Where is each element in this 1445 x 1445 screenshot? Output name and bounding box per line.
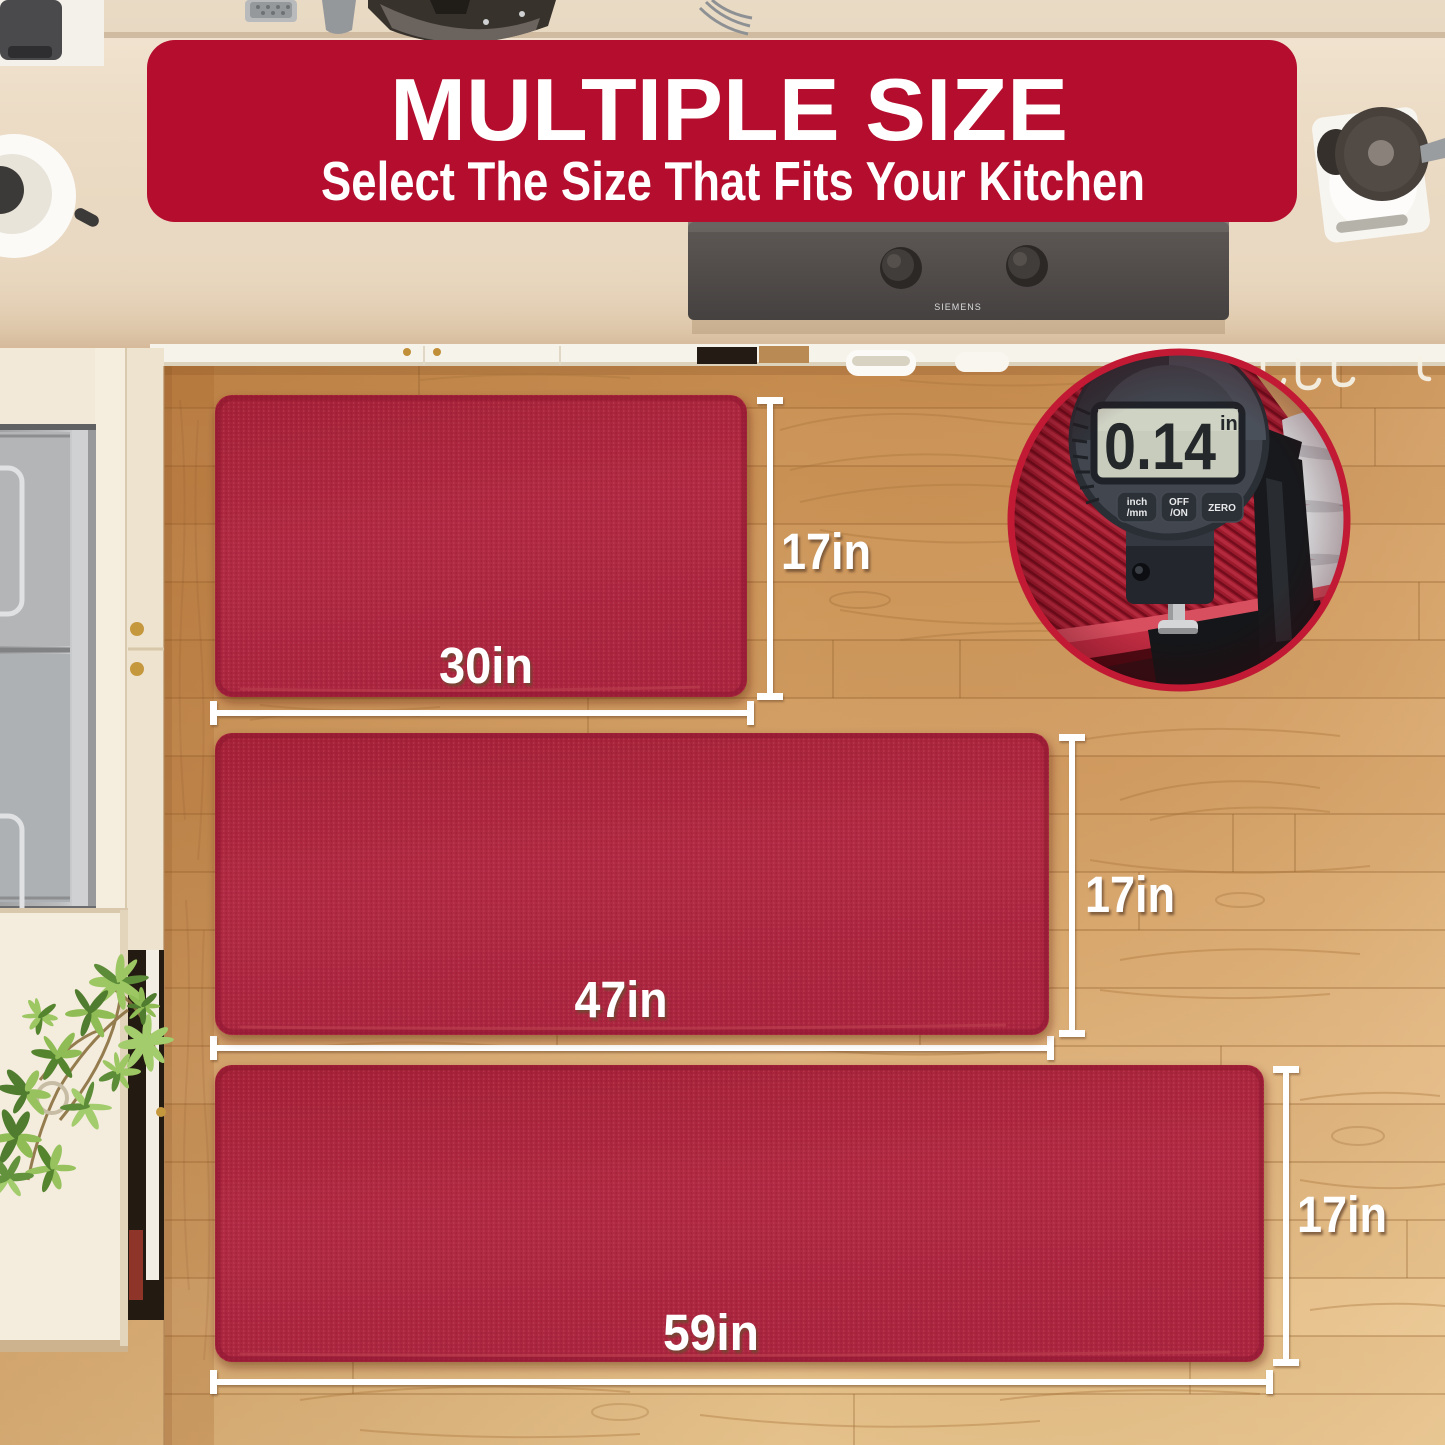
svg-text:17in: 17in xyxy=(1085,866,1175,923)
svg-text:Select The Size That Fits Your: Select The Size That Fits Your Kitchen xyxy=(321,150,1145,212)
svg-text:47in: 47in xyxy=(575,971,668,1028)
svg-text:17in: 17in xyxy=(1297,1186,1387,1243)
svg-text:59in: 59in xyxy=(663,1304,759,1361)
svg-text:17in: 17in xyxy=(781,523,871,580)
svg-text:30in: 30in xyxy=(439,637,533,694)
svg-text:MULTIPLE SIZE: MULTIPLE SIZE xyxy=(390,60,1068,159)
svg-text:SIEMENS: SIEMENS xyxy=(934,302,982,312)
